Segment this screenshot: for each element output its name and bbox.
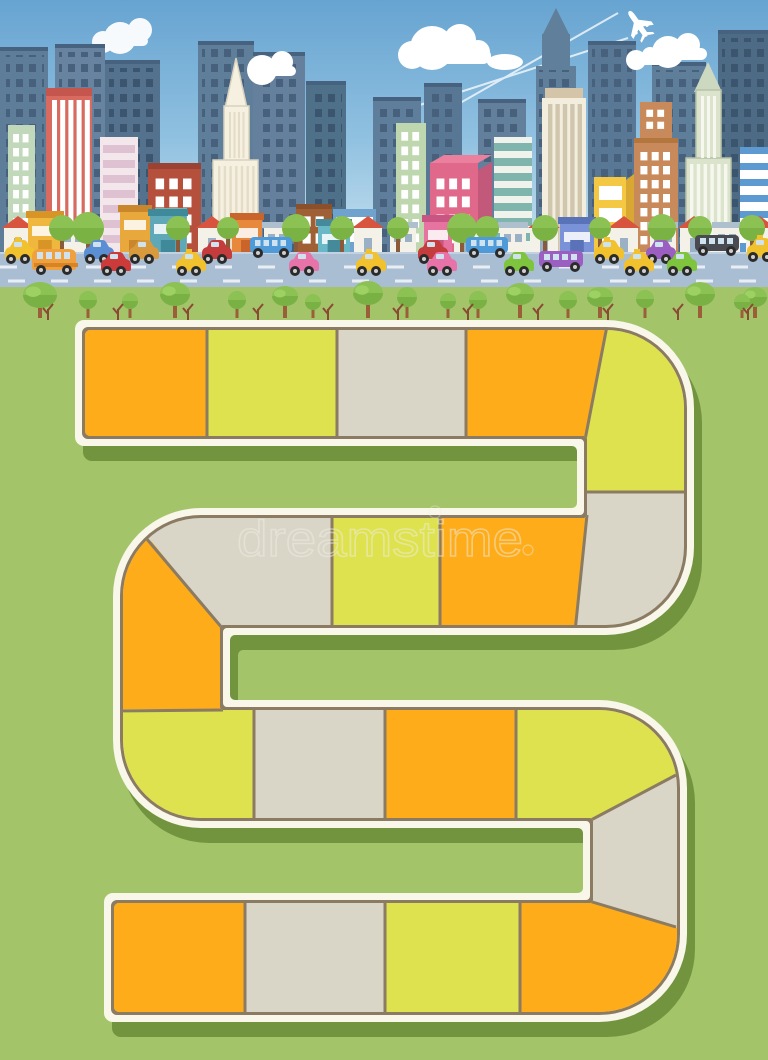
svg-text:dreamstime: dreamstime bbox=[237, 511, 523, 567]
